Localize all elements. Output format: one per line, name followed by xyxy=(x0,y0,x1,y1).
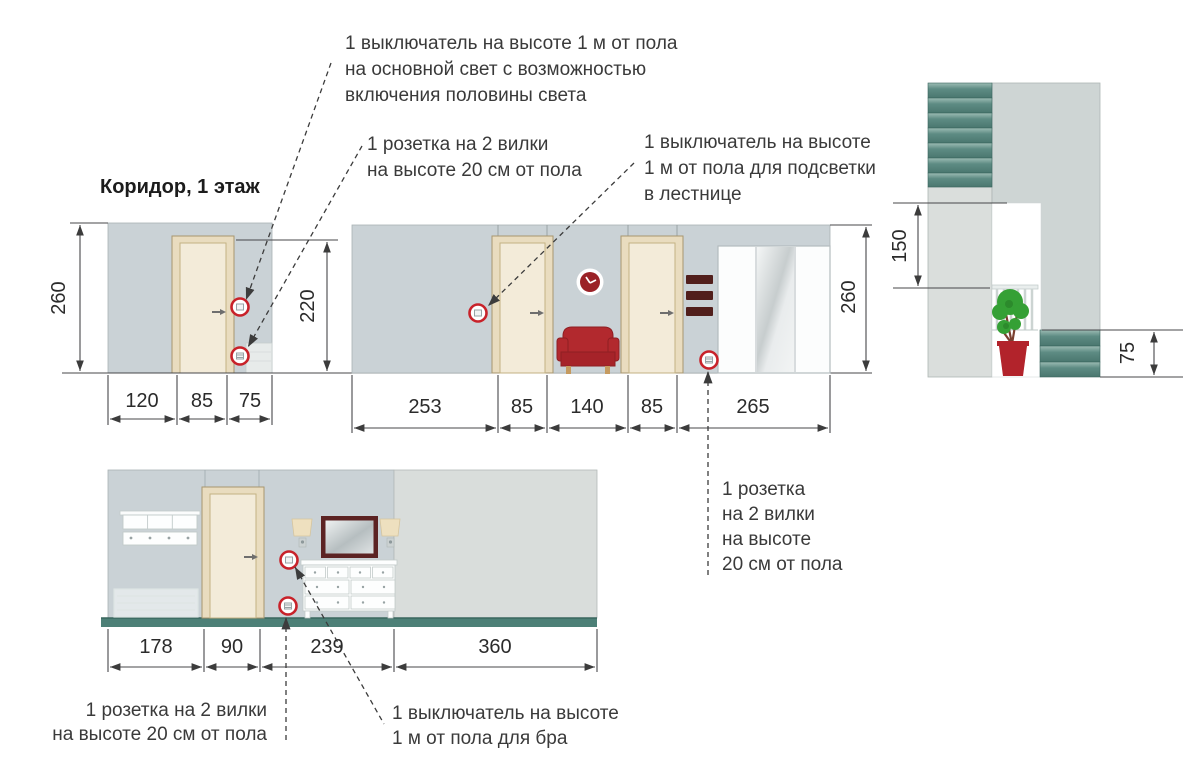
door xyxy=(172,236,234,373)
door-right xyxy=(621,236,683,373)
bench xyxy=(114,589,198,617)
lower-stair-steps xyxy=(1040,330,1100,377)
stair-wall-left xyxy=(928,187,992,377)
framed-mirror xyxy=(321,516,378,558)
switch-marker xyxy=(281,552,298,569)
outlet-marker xyxy=(280,598,297,615)
dim-middle-w1: 85 xyxy=(490,395,554,419)
note-stair-switch: 1 выключатель на высоте 1 м от пола для … xyxy=(644,130,876,208)
upper-stair-steps xyxy=(928,83,992,187)
baseboard xyxy=(101,618,597,627)
dim-middle-w4: 265 xyxy=(721,395,785,419)
dim-left-door-height: 220 xyxy=(296,274,320,338)
dim-bottom-w3: 360 xyxy=(463,635,527,659)
wall-clock xyxy=(577,269,604,296)
wall-right xyxy=(394,470,597,618)
outlet-marker xyxy=(701,352,718,369)
note-socket-wardrobe: 1 розетка на 2 вилки на высоте 20 см от … xyxy=(722,477,842,577)
dim-left-height: 260 xyxy=(47,266,71,330)
switch-marker xyxy=(232,299,249,316)
dim-stairs-opening: 150 xyxy=(888,214,912,278)
page-title: Коридор, 1 этаж xyxy=(100,175,260,199)
note-socket-bottom: 1 розетка на 2 вилки на высоте 20 см от … xyxy=(29,699,267,747)
note-socket-hall: 1 розетка на 2 вилки на высоте 20 см от … xyxy=(367,132,582,184)
dim-bottom-w0: 178 xyxy=(124,635,188,659)
dim-middle-w0: 253 xyxy=(393,395,457,419)
dim-bottom-w2: 239 xyxy=(295,635,359,659)
dim-left-w0: 120 xyxy=(110,389,174,413)
dim-left-w2: 75 xyxy=(218,389,282,413)
dim-stairs-step: 75 xyxy=(1116,321,1140,385)
note-main-switch: 1 выключатель на высоте 1 м от пола на о… xyxy=(345,31,677,109)
plant-pot xyxy=(997,341,1029,346)
dim-bottom-w1: 90 xyxy=(200,635,264,659)
dim-middle-w2: 140 xyxy=(555,395,619,419)
dim-middle-height: 260 xyxy=(837,265,861,329)
wardrobe-mirror xyxy=(757,247,794,372)
chair-leg xyxy=(566,366,571,374)
small-cabinet xyxy=(246,343,272,373)
dresser xyxy=(301,560,397,618)
note-bra-switch: 1 выключатель на высоте 1 м от пола для … xyxy=(392,701,619,751)
corridor-electrical-plan: Коридор, 1 этаж 1 выключатель на высоте … xyxy=(0,0,1200,783)
outlet-marker xyxy=(232,348,249,365)
chair-leg xyxy=(605,366,610,374)
wall-shelves xyxy=(686,275,713,316)
dim-middle-w3: 85 xyxy=(620,395,684,419)
switch-marker xyxy=(470,305,487,322)
door-left xyxy=(492,236,553,373)
mirror-wardrobe xyxy=(718,246,830,373)
door xyxy=(202,487,264,618)
coat-rack xyxy=(120,511,200,545)
